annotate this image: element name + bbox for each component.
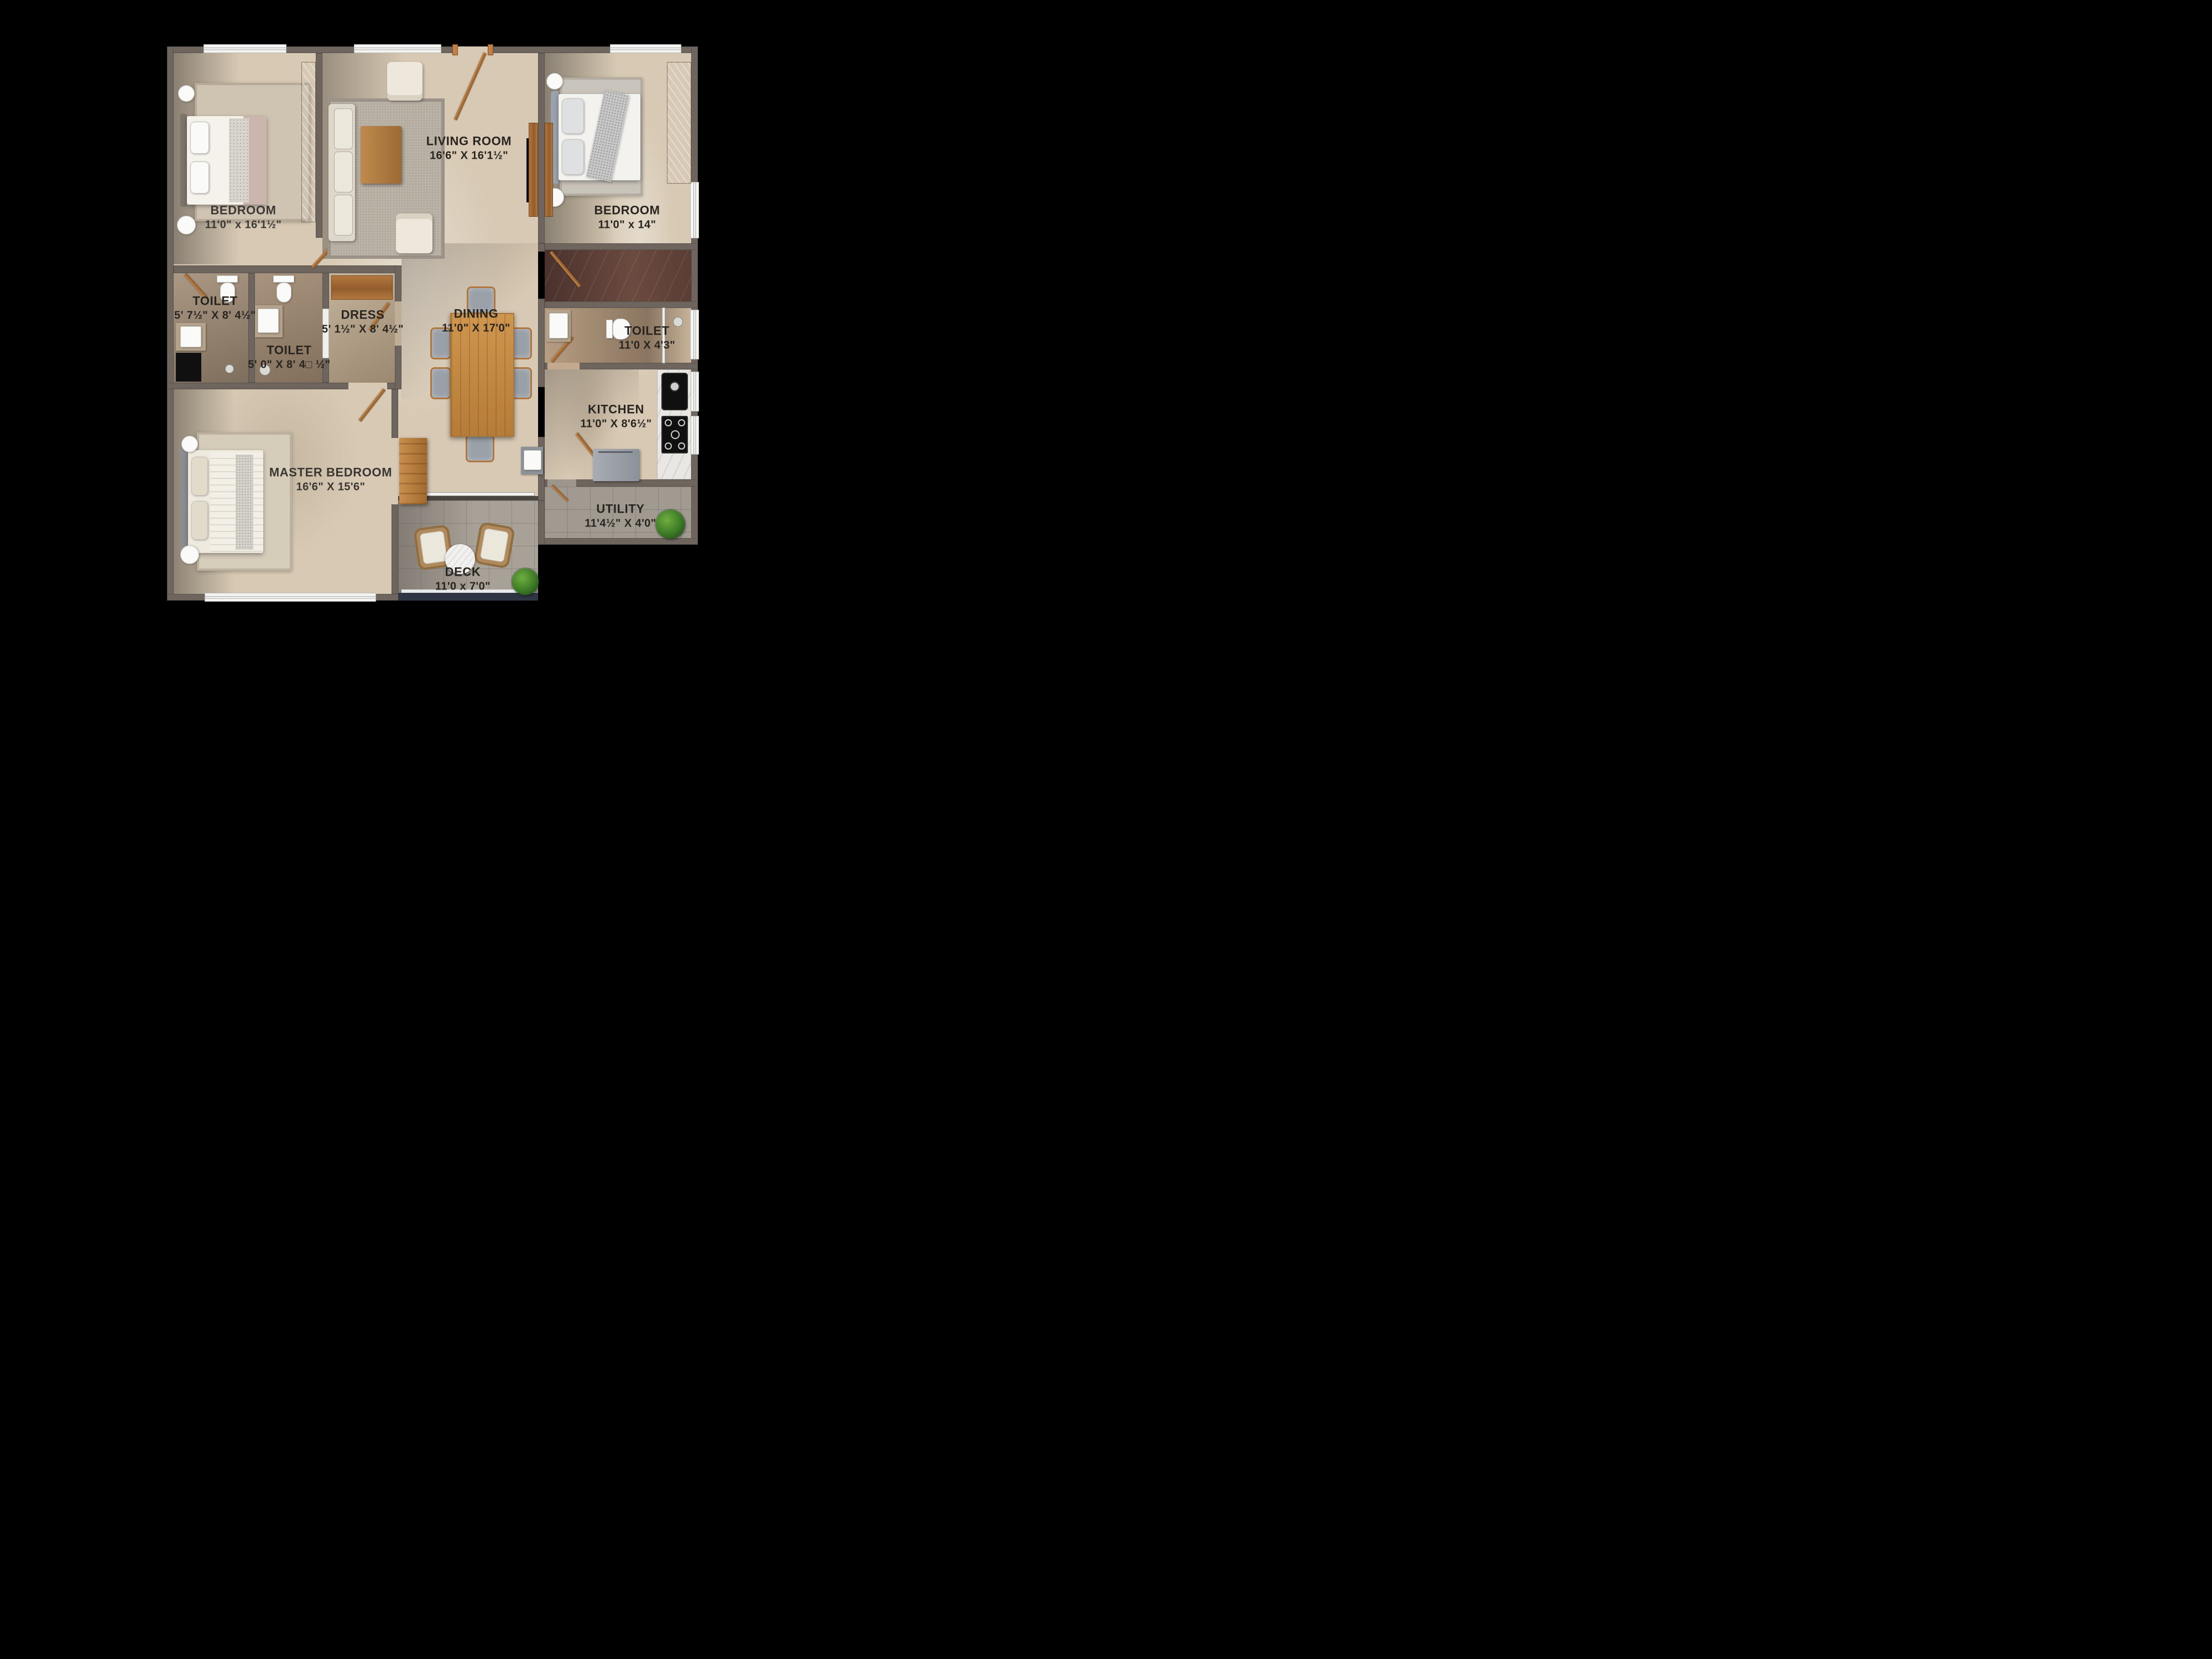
bedroom-left-pillow-2 xyxy=(190,161,209,194)
living-tv xyxy=(526,138,529,202)
deck-chair-left-cushion xyxy=(419,530,447,565)
wall-outer-bottom-right xyxy=(538,538,698,545)
bedroom-right-nightstand-top xyxy=(546,73,563,90)
wall-toilets-top xyxy=(174,265,401,273)
wall-spine-top xyxy=(538,53,545,243)
master-headboard xyxy=(180,448,188,555)
master-nightstand-top xyxy=(181,436,198,452)
living-coffee-table xyxy=(361,126,401,184)
kitchen-hob-burner-1 xyxy=(665,419,672,426)
kitchen-hob-burner-4 xyxy=(678,442,685,450)
living-tv-console xyxy=(529,123,538,217)
label-dining: DINING 11'0" X 17'0" xyxy=(442,306,510,335)
master-pillow-2 xyxy=(191,501,208,540)
bedroom-right-tv-console xyxy=(545,123,553,217)
living-armchair-bottom xyxy=(396,213,432,253)
living-armchair-top xyxy=(387,62,422,101)
label-dress: DRESS 5' 1½" X 8' 4½" xyxy=(322,307,404,336)
dining-chair-bottom xyxy=(466,435,494,462)
wall-outer-left xyxy=(167,46,174,601)
living-sofa-cushion-1 xyxy=(334,108,353,149)
toilet-left-shower xyxy=(176,353,201,382)
utility-plant xyxy=(656,510,685,539)
window-kitchen-side-1 xyxy=(690,372,699,411)
window-kitchen-side-2 xyxy=(690,416,699,455)
label-toilet-left: TOILET 5' 7½" X 8' 4½" xyxy=(174,294,256,322)
bedroom-right-pillow-2 xyxy=(562,139,584,175)
label-living-room: LIVING ROOM 16'6" X 16'1½" xyxy=(426,134,512,162)
opening-master-door xyxy=(348,383,387,389)
label-master-bedroom: MASTER BEDROOM 16'6" X 15'6" xyxy=(269,465,392,493)
living-sofa-cushion-2 xyxy=(334,152,353,192)
master-pillow-1 xyxy=(191,457,208,495)
wall-deck-utility xyxy=(538,500,545,545)
floorplan-canvas: LIVING ROOM 16'6" X 16'1½" BEDROOM 11'0"… xyxy=(0,0,867,650)
toilet-right-basin xyxy=(549,313,568,338)
wall-passage-toiletright xyxy=(545,301,698,308)
living-sofa-cushion-3 xyxy=(334,195,353,236)
toilet-right-wc-tank xyxy=(606,320,613,338)
window-bedroom-right-side xyxy=(690,182,699,238)
wall-outer-right xyxy=(691,46,698,545)
entry-frame-stub-right xyxy=(488,44,493,55)
opening-toiletright-door xyxy=(547,363,580,369)
window-bedroom-right-top xyxy=(610,44,681,53)
kitchen-hob-burner-center xyxy=(671,430,680,439)
master-throw xyxy=(236,455,253,550)
wall-bedroomright-bottom xyxy=(545,243,698,250)
kitchen-sink-faucet xyxy=(671,383,679,390)
toilet-left-wc-tank xyxy=(217,275,238,283)
hall-washbasin xyxy=(524,450,541,470)
window-master-bottom xyxy=(205,593,376,602)
label-toilet-right: TOILET 11'0 X 4'3" xyxy=(619,324,675,352)
dress-wardrobe xyxy=(331,275,393,300)
entry-frame-stub-left xyxy=(452,44,458,55)
kitchen-hob-burner-2 xyxy=(678,419,685,426)
opening-master-sliding xyxy=(392,438,398,504)
window-bedroom-left-top xyxy=(204,44,286,53)
kitchen-island-handle xyxy=(598,451,633,453)
bedroom-right-wardrobe xyxy=(667,62,691,184)
wall-bedroomleft-living xyxy=(316,53,322,238)
kitchen-island xyxy=(593,449,639,481)
bedroom-left-nightstand-bottom xyxy=(177,216,196,234)
master-nightstand-bottom xyxy=(180,545,199,564)
toilet-left-basin xyxy=(180,326,201,347)
bedroom-right-pillow-1 xyxy=(562,98,584,134)
label-bedroom-left: BEDROOM 11'0" x 16'1½" xyxy=(205,203,282,231)
window-living-top xyxy=(354,44,441,53)
deck-railing xyxy=(398,593,538,601)
wall-spine-a xyxy=(538,243,545,252)
toilet-mid-wc-bowl xyxy=(276,283,291,302)
bedroom-left-nightstand-top xyxy=(178,85,195,102)
label-toilet-mid: TOILET 5' 0" X 8' 4□ ½" xyxy=(248,343,330,371)
toilet-mid-wc-tank xyxy=(273,275,294,283)
kitchen-hob-burner-3 xyxy=(665,442,672,450)
passage-marble-floor xyxy=(545,250,691,301)
label-bedroom-right: BEDROOM 11'0" x 14" xyxy=(594,203,660,231)
label-deck: DECK 11'0 x 7'0" xyxy=(435,565,491,593)
window-toilet-right-side xyxy=(690,310,699,359)
deck-plant xyxy=(512,568,539,595)
dining-chair-left-2 xyxy=(430,367,451,399)
toilet-mid-basin xyxy=(258,309,279,333)
bedroom-left-pillow-1 xyxy=(190,122,209,154)
wall-spine-b xyxy=(538,299,545,387)
bedroom-left-throw xyxy=(229,118,249,202)
label-kitchen: KITCHEN 11'0" X 8'6½" xyxy=(580,402,651,430)
master-sliding-door-panel xyxy=(399,438,427,504)
bedroom-left-headboard xyxy=(180,114,187,207)
label-utility: UTILITY 11'4½" X 4'0" xyxy=(585,502,656,530)
entry-opening xyxy=(457,46,489,53)
toilet-left-shower-drain xyxy=(226,365,233,373)
kitchen-sink xyxy=(661,373,688,410)
bedroom-left-wardrobe xyxy=(301,62,316,222)
